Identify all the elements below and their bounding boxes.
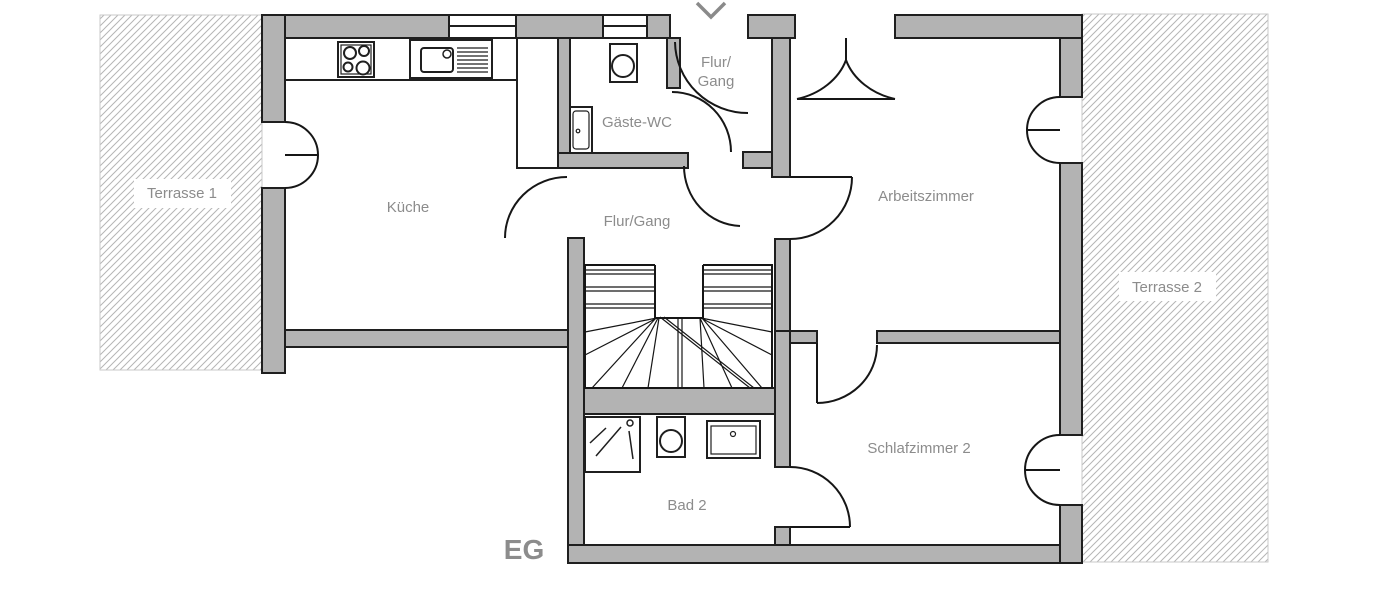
wall-segment: [568, 238, 584, 545]
faucet-icon: [443, 50, 451, 58]
wall-segment: [1060, 38, 1082, 97]
wall-segment: [748, 15, 795, 38]
bath2-fixtures: [585, 417, 760, 472]
kueche-label: Küche: [387, 199, 430, 216]
floor-level-label: EG: [504, 534, 544, 565]
wall-segment: [262, 15, 449, 38]
schlafzimmer2-label: Schlafzimmer 2: [867, 440, 970, 457]
burner-icon: [344, 63, 353, 72]
gaeste-wc-label: Gäste-WC: [602, 114, 672, 131]
faucet-icon: [731, 432, 736, 437]
toilet-bowl: [660, 430, 682, 452]
stair-landing: [655, 265, 703, 318]
study-double-door: [797, 38, 895, 99]
kitchen-fixtures: [285, 38, 558, 168]
staircase: [585, 265, 772, 388]
toilet-bowl: [612, 55, 634, 77]
bedroom-door: [817, 343, 877, 403]
shower-head: [627, 420, 633, 426]
kitchen-door: [505, 177, 567, 238]
burner-icon: [357, 62, 370, 75]
burner-icon: [344, 47, 356, 59]
wall-segment: [1060, 505, 1082, 563]
stair-treads-right: [703, 270, 772, 308]
tall-cabinet-icon: [517, 38, 558, 168]
wall-segment: [1060, 163, 1082, 435]
wall-segment: [516, 15, 603, 38]
wall-segment: [895, 15, 1082, 38]
terrasse2-label: Terrasse 2: [1132, 279, 1202, 296]
wall-segment: [775, 239, 790, 331]
terrace2-french-door-study: [1027, 97, 1060, 163]
wall-segment: [262, 15, 285, 122]
burner-icon: [359, 46, 369, 56]
wall-segment: [877, 331, 1082, 343]
wall-segment: [558, 153, 688, 168]
wall-segment: [568, 545, 1082, 563]
guest-wc-door: [672, 92, 731, 152]
stair-treads-left: [585, 270, 655, 308]
wall-segment: [584, 388, 775, 414]
terrace1-french-door: [285, 122, 318, 188]
floor-plan-canvas: Terrasse 1 Küche Gäste-WC Flur/ Gang Flu…: [0, 0, 1400, 600]
wall-segment: [558, 38, 570, 168]
wall-segment: [262, 188, 285, 373]
drain-dot: [576, 129, 580, 133]
stair-diagonal: [660, 317, 754, 388]
terrasse1-label: Terrasse 1: [147, 185, 217, 202]
wall-segment: [775, 527, 790, 545]
arbeitszimmer-label: Arbeitszimmer: [878, 188, 974, 205]
flur-gang-top-label-line1: Flur/: [701, 54, 732, 71]
wall-segment: [775, 331, 790, 467]
entrance-arrow-icon: [697, 3, 725, 17]
wall-segment: [647, 15, 670, 38]
bad2-label: Bad 2: [667, 497, 706, 514]
wall-segment: [285, 330, 568, 347]
flur-gang-top-label-line2: Gang: [698, 73, 735, 90]
wall-segment: [790, 331, 817, 343]
hall-door: [684, 166, 740, 226]
stair-winders-left: [585, 318, 659, 388]
flur-gang-label: Flur/Gang: [604, 213, 671, 230]
terrace2-french-door-bedroom: [1025, 435, 1060, 505]
guest-wc-fixtures: [570, 44, 637, 153]
floor-plan: Terrasse 1 Küche Gäste-WC Flur/ Gang Flu…: [0, 0, 1400, 600]
bath2-door: [790, 467, 850, 527]
drainboard-lines: [457, 48, 488, 72]
wall-segment: [772, 38, 790, 177]
study-door: [790, 177, 852, 239]
